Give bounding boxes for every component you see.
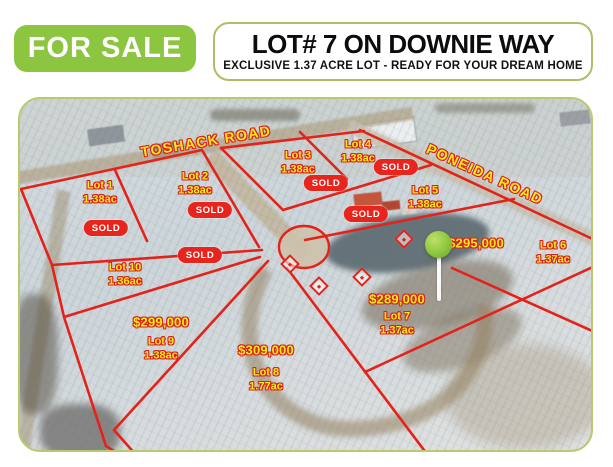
lot-label-10: Lot 101.36ac — [108, 261, 142, 289]
lot-label-1: Lot 11.38ac — [83, 179, 117, 207]
lot-label-9: Lot 91.38ac — [144, 335, 178, 363]
for-sale-badge: FOR SALE — [14, 25, 196, 72]
lot-label-7: Lot 71.37ac — [380, 310, 414, 338]
price-label-lot-6: $295,000 — [448, 236, 504, 251]
flyer-page: FOR SALE LOT# 7 ON DOWNIE WAY EXCLUSIVE … — [0, 0, 613, 467]
lot-label-3: Lot 31.38ac — [281, 149, 315, 177]
sold-badge-lot-2: SOLD — [188, 202, 232, 218]
sold-badge-lot-5: SOLD — [344, 206, 388, 222]
page-title: LOT# 7 ON DOWNIE WAY — [252, 31, 555, 58]
for-sale-label: FOR SALE — [28, 32, 183, 65]
lot-label-5: Lot 51.38ac — [408, 184, 442, 212]
title-box: LOT# 7 ON DOWNIE WAY EXCLUSIVE 1.37 ACRE… — [213, 22, 593, 81]
lot-label-2: Lot 21.38ac — [178, 170, 212, 198]
page-subtitle: EXCLUSIVE 1.37 ACRE LOT - READY FOR YOUR… — [223, 60, 583, 72]
lot-label-6: Lot 61.37ac — [536, 239, 570, 267]
price-label-lot-9: $299,000 — [133, 315, 189, 330]
price-label-lot-7: $289,000 — [369, 292, 425, 307]
sold-badge-lot-10: SOLD — [178, 247, 222, 263]
lot-label-8: Lot 81.77ac — [249, 366, 283, 394]
sold-badge-lot-3: SOLD — [304, 175, 348, 191]
aerial-photo: TOSHACK ROAD PONEIDA ROAD Lot 11.38ac Lo… — [18, 97, 593, 452]
location-pin-icon — [425, 231, 452, 258]
sold-badge-lot-4: SOLD — [374, 159, 418, 175]
lot-label-4: Lot 41.38ac — [341, 138, 375, 166]
sold-badge-lot-1: SOLD — [84, 220, 128, 236]
price-label-lot-8: $309,000 — [238, 343, 294, 358]
